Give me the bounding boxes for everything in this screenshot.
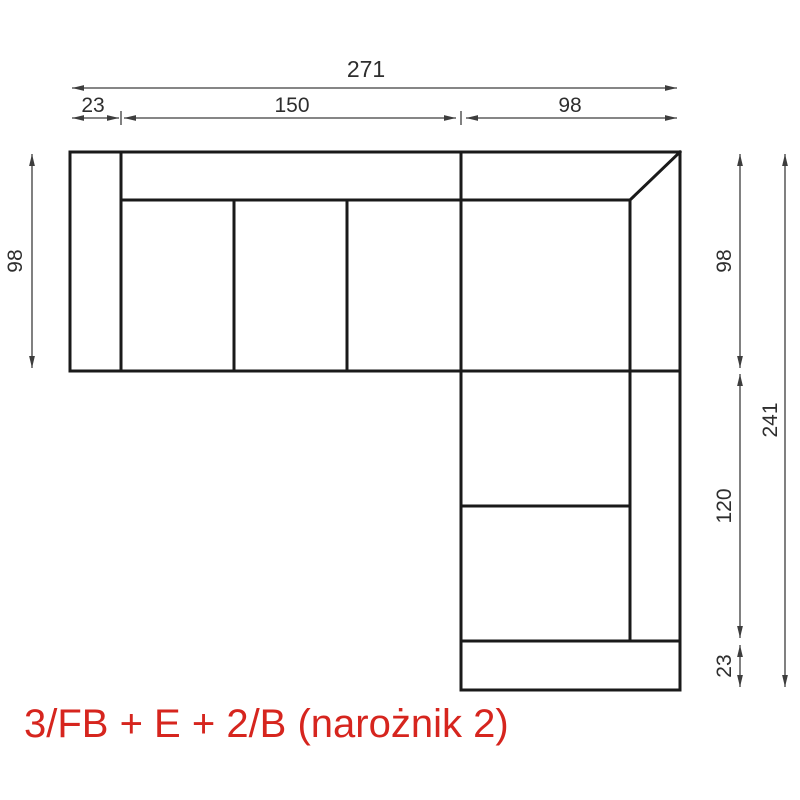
- dim-top-segments: 23 150 98: [72, 94, 677, 125]
- dim-right-segments: 98 120 23: [713, 154, 740, 687]
- dim-label-top-corner: 98: [558, 94, 581, 117]
- dim-label-top-seats: 150: [274, 94, 309, 117]
- product-code-caption: 3/FB + E + 2/B (narożnik 2): [24, 702, 509, 746]
- dim-label-right-corner-depth: 98: [713, 249, 736, 272]
- sofa-dimension-diagram: 271 23 150 98 98 98 120 23: [0, 0, 800, 800]
- diagram-canvas: 271 23 150 98 98 98 120 23: [0, 0, 800, 800]
- dim-label-right-armrest: 23: [713, 654, 736, 677]
- sofa-outline: [70, 152, 680, 690]
- dim-label-left-depth: 98: [4, 249, 27, 272]
- dim-label-right-chaise: 120: [713, 488, 736, 523]
- dim-label-right-total: 241: [759, 402, 782, 437]
- dim-label-top-total: 271: [347, 56, 385, 82]
- dim-label-top-armrest: 23: [81, 94, 104, 117]
- corner-diagonal: [630, 152, 680, 200]
- sofa-shape: [70, 152, 680, 690]
- dim-right-total: 241: [759, 154, 785, 687]
- dim-left-depth: 98: [4, 154, 32, 368]
- dim-top-total: 271: [72, 56, 677, 88]
